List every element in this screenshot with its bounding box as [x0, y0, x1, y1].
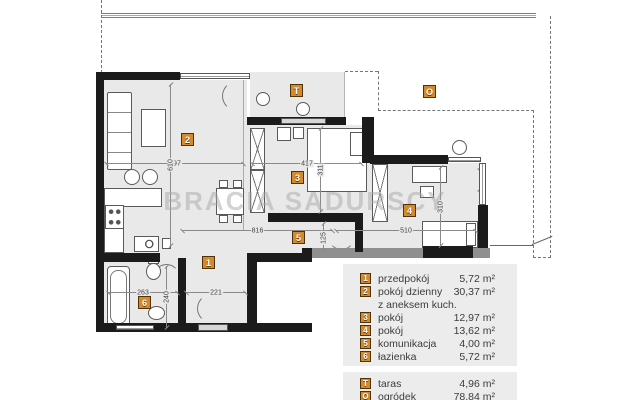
legend-marker-icon: 5	[360, 338, 371, 349]
dimension-816: 816	[182, 230, 333, 231]
legend-row: 5komunikacja4,00 m²	[360, 337, 495, 350]
door-arc	[222, 81, 252, 111]
dimension-label: 510	[399, 228, 413, 235]
garden-boundary	[378, 71, 379, 111]
legend-area-value: 4,96 m²	[459, 378, 495, 390]
dimension-221: 221	[186, 292, 246, 293]
watermark: BRACIA SADURSCY	[140, 186, 470, 217]
dimension-240: 240	[166, 266, 167, 328]
wall	[96, 72, 104, 332]
plot-boundary	[101, 0, 102, 73]
room-marker-1: 1	[202, 256, 215, 269]
garden-boundary	[533, 257, 551, 258]
legend-marker-icon: 2	[360, 286, 371, 297]
room-marker-3: 3	[291, 171, 304, 184]
kitchen-sink	[142, 169, 158, 185]
room-marker-2: 2	[181, 133, 194, 146]
legend-label: łazienka	[378, 351, 459, 363]
coffee-table	[141, 109, 166, 147]
dimension-label: 125	[321, 231, 328, 245]
dimension-510: 510	[336, 230, 476, 231]
entrance-door-sill	[198, 324, 228, 331]
legend-outdoor: Ttaras4,96 m²Oogródek78,84 m²	[343, 372, 517, 400]
legend-row: 6łazienka5,72 m²	[360, 350, 495, 363]
balcony-door	[281, 118, 326, 124]
legend-label: z aneksem kuch.	[378, 299, 495, 311]
sofa	[107, 92, 132, 170]
wall	[370, 155, 448, 164]
legend-label: pokój	[378, 312, 454, 324]
legend-label: taras	[378, 378, 459, 390]
legend-row: 3pokój12,97 m²	[360, 311, 495, 324]
legend-rooms: 1przedpokój5,72 m²2pokój dzienny30,37 m²…	[343, 264, 517, 366]
wall	[96, 72, 180, 80]
legend-area-value: 30,37 m²	[454, 286, 495, 298]
legend-marker-icon: O	[360, 391, 371, 400]
oven	[134, 236, 159, 252]
legend-area-value: 5,72 m²	[459, 273, 495, 285]
room-marker-6: 6	[138, 296, 151, 309]
dimension-610: 610	[170, 84, 171, 246]
bathtub-inner	[110, 270, 127, 324]
legend-label: komunikacja	[378, 338, 459, 350]
wall	[104, 253, 160, 262]
garden-boundary	[378, 110, 534, 111]
dimension-label: 240	[164, 290, 171, 304]
wall	[355, 222, 363, 252]
fence-line	[101, 13, 536, 18]
garden-boundary	[533, 110, 534, 258]
pillow	[466, 223, 476, 246]
legend-area-value: 12,97 m²	[454, 312, 495, 324]
wall	[247, 262, 257, 323]
plot-boundary	[550, 16, 551, 258]
legend-label: pokój dzienny	[378, 286, 454, 298]
legend-area-value: 13,62 m²	[454, 325, 495, 337]
dimension-125: 125	[323, 223, 324, 252]
dimension-label: 816	[251, 228, 265, 235]
room-marker-5: 5	[292, 231, 305, 244]
kitchen-sink	[124, 169, 140, 185]
legend-label: przedpokój	[378, 273, 459, 285]
legend-row: z aneksem kuch.	[360, 298, 495, 311]
dimension-417: 417	[252, 163, 362, 164]
window	[180, 73, 250, 79]
legend-area-value: 5,72 m²	[459, 351, 495, 363]
door-arc	[197, 294, 226, 323]
garden-path	[490, 245, 533, 246]
dimension-label: 311	[318, 163, 325, 176]
garden-boundary	[345, 71, 378, 72]
legend-marker-icon: 1	[360, 273, 371, 284]
door-arc	[328, 223, 355, 250]
toilet	[146, 263, 161, 280]
desk	[412, 166, 447, 183]
window	[116, 325, 154, 330]
legend-marker-icon: 6	[360, 351, 371, 362]
legend-area-value: 4,00 m²	[459, 338, 495, 350]
room-marker-4: 4	[403, 204, 416, 217]
dimension-497: 497	[106, 163, 244, 164]
terrace-lamp	[256, 92, 270, 106]
dimension-label: 221	[209, 290, 223, 297]
legend-marker-spacer	[360, 299, 371, 310]
legend-row: 1przedpokój5,72 m²	[360, 272, 495, 285]
legend-area-value: 78,84 m²	[454, 391, 495, 400]
legend-row: Oogródek78,84 m²	[360, 390, 495, 400]
wall	[302, 248, 312, 262]
room-marker-T: T	[290, 84, 303, 97]
nightstand	[293, 127, 304, 139]
floor-plan: 497610417311816125510310263221240 123456…	[0, 0, 620, 400]
legend-marker-icon: 3	[360, 312, 371, 323]
entry-lamp	[452, 140, 467, 155]
stove	[105, 205, 124, 229]
legend-row: 4pokój13,62 m²	[360, 324, 495, 337]
nightstand	[277, 127, 291, 141]
room-marker-O: O	[423, 85, 436, 98]
legend-marker-icon: T	[360, 378, 371, 389]
legend-label: ogródek	[378, 391, 454, 400]
window	[479, 163, 486, 205]
terrace-lamp	[296, 102, 310, 116]
wall	[423, 246, 473, 258]
dimension-label: 610	[168, 158, 175, 172]
legend-row: Ttaras4,96 m²	[360, 377, 495, 390]
dimension-label: 417	[300, 161, 314, 168]
legend-row: 2pokój dzienny30,37 m²	[360, 285, 495, 298]
legend-label: pokój	[378, 325, 454, 337]
exterior-door-frame	[448, 157, 481, 162]
legend-marker-icon: 4	[360, 325, 371, 336]
